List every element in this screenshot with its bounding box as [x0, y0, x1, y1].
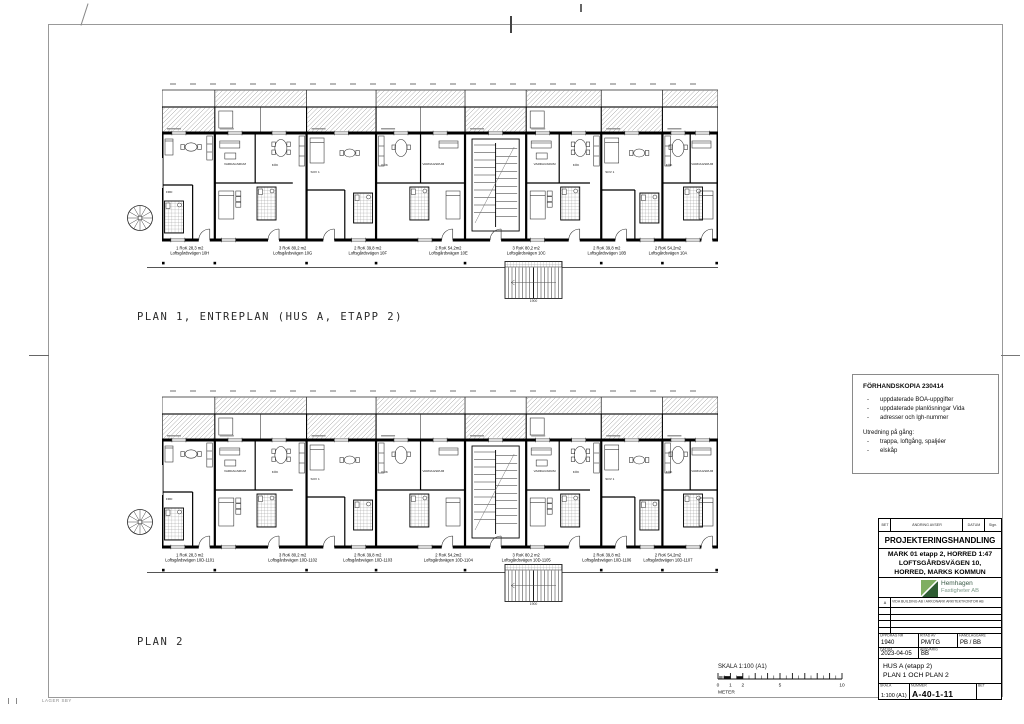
room-label: VARDAGSRUM: [422, 469, 444, 473]
fold-mark: [580, 4, 582, 12]
scale-bar-label: SKALA 1:100 (A1): [718, 664, 767, 670]
room-label: FRD: [166, 497, 173, 501]
apartment-label: 2 RoK 54,2m2Loftsgårdsvägen 10A: [649, 246, 688, 256]
fold-mark: [510, 16, 512, 33]
b1-building-svg: FRDVARDAGSRUMKÖKSOV 1VARDAGSRUMKÖKVARDAG…: [162, 88, 718, 273]
frame-top: [48, 24, 1002, 25]
edge-tick: [1001, 355, 1020, 356]
note-item: -uppdaterade BOA-uppgifter: [867, 397, 953, 403]
room-label: VARDAGSRUM: [224, 162, 246, 166]
scale-tick-label: 1: [729, 683, 732, 689]
handlaggare: PB / BB: [960, 640, 981, 646]
room-label: SOV 1: [605, 477, 614, 481]
note-item: -uppdaterade planlösningar Vida: [867, 406, 965, 412]
room-label: KÖK: [666, 163, 673, 167]
scale-tick-label: 2: [741, 683, 744, 689]
corner-label: LAGER SBY: [42, 698, 72, 703]
drawing-title-row: HUS A (etapp 2) PLAN 1 OCH PLAN 2: [879, 659, 1001, 684]
apartment-label: 2 RoK 54,2m2Loftsgårdsvägen 10D-1104: [424, 553, 474, 563]
room-label: KÖK: [666, 470, 673, 474]
drawing-title-2: PLAN 1 OCH PLAN 2: [883, 672, 949, 679]
stair-dimension: 1900: [530, 299, 538, 303]
room-label: VARDAGSRUM: [534, 469, 556, 473]
frame-bottom: [48, 697, 1002, 698]
spiral-stair-icon: [124, 506, 156, 538]
apartment-label: 2 RoK 39,8 m2Loftsgårdsvägen 10B: [587, 246, 626, 256]
room-label: SOV 1: [311, 170, 320, 174]
spiral-stair-icon: [124, 202, 156, 234]
datum: 2023-04-05: [881, 651, 912, 657]
dimension-row: [170, 390, 710, 392]
external-stair: 1900: [504, 261, 564, 303]
revision-entry-row: A VIDA BUILDING AB / ARKONARK ARKITEKTKO…: [879, 598, 1001, 608]
ansvarig: BB: [921, 651, 929, 657]
apartment-label: 2 RoK 39,8 m2Loftsgårdsvägen 10D-1106: [582, 553, 632, 563]
external-stair-svg: 1900: [504, 261, 564, 303]
title-block: BET ÄNDRING AVSER DATUM Sign. PROJEKTERI…: [878, 518, 1002, 700]
revision-note-box: FÖRHANDSKOPIA 230414 -uppdaterade BOA-up…: [852, 374, 999, 474]
drawing-sheet: LAGER SBY FRDVARDAGSRUMKÖKSOV 1VARDAGSRU…: [0, 0, 1024, 724]
apartment-label: 1 RoK 28,3 m2Loftsgårdsvägen 10H: [170, 246, 209, 256]
apartment-label: 3 RoK 80,2 m2Loftsgårdsvägen 10G: [273, 246, 312, 256]
room-label: KÖK: [573, 163, 580, 167]
frame-left: [48, 24, 49, 697]
dimension-row: [170, 83, 710, 85]
note-item: -adresser och lgh-nummer: [867, 415, 948, 421]
apartment-label: 2 RoK 54,2m2Loftsgårdsvägen 10D-1107: [643, 553, 693, 563]
plan1-caption: PLAN 1, ENTREPLAN (HUS A, ETAPP 2): [137, 311, 403, 323]
scale-bar: SKALA 1:100 (A1)012510METER: [712, 659, 852, 697]
scale-tick-label: 0: [717, 683, 720, 689]
note-item: -trappa, loftgång, spaljéer: [867, 439, 946, 445]
scale-tick-label: 5: [779, 683, 782, 689]
fields-row-1: UPPDRAG NR 1940 RITAD AV PM/TG HANDLÄGGA…: [879, 634, 1001, 648]
room-label: SOV 1: [605, 170, 614, 174]
apartment-label: 3 RoK 80,2 m2Loftsgårdsvägen 10C: [507, 246, 546, 256]
stair-dimension: 1900: [530, 602, 538, 606]
plan1-floorplan: FRDVARDAGSRUMKÖKSOV 1VARDAGSRUMKÖKVARDAG…: [162, 88, 718, 273]
spiral-stair-svg: [124, 202, 156, 234]
room-label: KÖK: [573, 470, 580, 474]
drawing-title-1: HUS A (etapp 2): [883, 663, 932, 670]
room-label: FRD: [166, 190, 173, 194]
doc-type: PROJEKTERINGSHANDLING: [879, 536, 1001, 545]
apartment-label: 1 RoK 28,3 m2Loftsgårdsvägen 10D-1101: [165, 553, 215, 563]
drawing-number: A-40-1-11: [912, 689, 953, 699]
external-stair: 1900: [504, 564, 564, 606]
plan2-floorplan: FRDVARDAGSRUMKÖKSOV 1VARDAGSRUMKÖKVARDAG…: [162, 395, 718, 580]
room-label: VARDAGSRUM: [422, 162, 444, 166]
room-label: VARDAGSRUM: [224, 469, 246, 473]
edge-tick: [8, 698, 9, 704]
logo-row: Hemhagen Fastigheter AB: [879, 578, 1001, 598]
company-name-2: Fastigheter AB: [941, 588, 979, 594]
room-label: KÖK: [272, 163, 279, 167]
fields-row-2: DATUM 2023-04-05 ANSVARIG BB: [879, 648, 1001, 659]
fold-mark: [80, 3, 88, 25]
room-label: KÖK: [272, 470, 279, 474]
scale-tick-label: 10: [839, 683, 845, 689]
apartment-label: 3 RoK 80,2 m2Loftsgårdsvägen 10D-1105: [502, 553, 552, 563]
revision-header-row: BET ÄNDRING AVSER DATUM Sign.: [879, 519, 1001, 532]
company-name: Hemhagen: [941, 580, 973, 587]
apartment-label: 2 RoK 39,8 m2Loftsgårdsvägen 10F: [348, 246, 387, 256]
note-item: -elskåp: [867, 448, 897, 454]
frame-right: [1002, 24, 1003, 697]
company-logo-icon: [921, 580, 938, 597]
room-label: SOV 1: [311, 477, 320, 481]
b2-building-svg: FRDVARDAGSRUMKÖKSOV 1VARDAGSRUMKÖKVARDAG…: [162, 395, 718, 580]
apartment-label: 3 RoK 80,2 m2Loftsgårdsvägen 10D-1102: [268, 553, 318, 563]
doc-type-row: PROJEKTERINGSHANDLING: [879, 532, 1001, 549]
uppdrag-nr: 1940: [881, 640, 894, 646]
scale-bar-svg: SKALA 1:100 (A1)012510METER: [712, 659, 852, 697]
edge-tick: [29, 355, 49, 356]
room-label: KÖK: [381, 470, 388, 474]
apartment-label: 2 RoK 54,2m2Loftsgårdsvägen 10E: [429, 246, 468, 256]
external-stair-svg: 1900: [504, 564, 564, 606]
scale-unit-label: METER: [718, 690, 735, 696]
skala: 1:100 (A1): [881, 693, 907, 699]
note-title: FÖRHANDSKOPIA 230414: [863, 383, 944, 390]
room-label: KÖK: [381, 163, 388, 167]
project-row: MARK 01 etapp 2, HORRED 1:47 LOFTSGÅRDSV…: [879, 549, 1001, 578]
apartment-label: 2 RoK 39,8 m2Loftsgårdsvägen 10D-1103: [343, 553, 393, 563]
edge-tick: [16, 698, 17, 704]
spiral-stair-svg: [124, 506, 156, 538]
room-label: VARDAGSRUM: [534, 162, 556, 166]
room-label: VARDAGSRUM: [691, 469, 713, 473]
number-row: SKALA 1:100 (A1) NUMMER A-40-1-11 BET: [879, 684, 1001, 700]
ritad-av: PM/TG: [921, 640, 940, 646]
plan2-caption: PLAN 2: [137, 636, 184, 648]
note-subtitle: Utredning på gång:: [863, 430, 914, 436]
room-label: VARDAGSRUM: [691, 162, 713, 166]
